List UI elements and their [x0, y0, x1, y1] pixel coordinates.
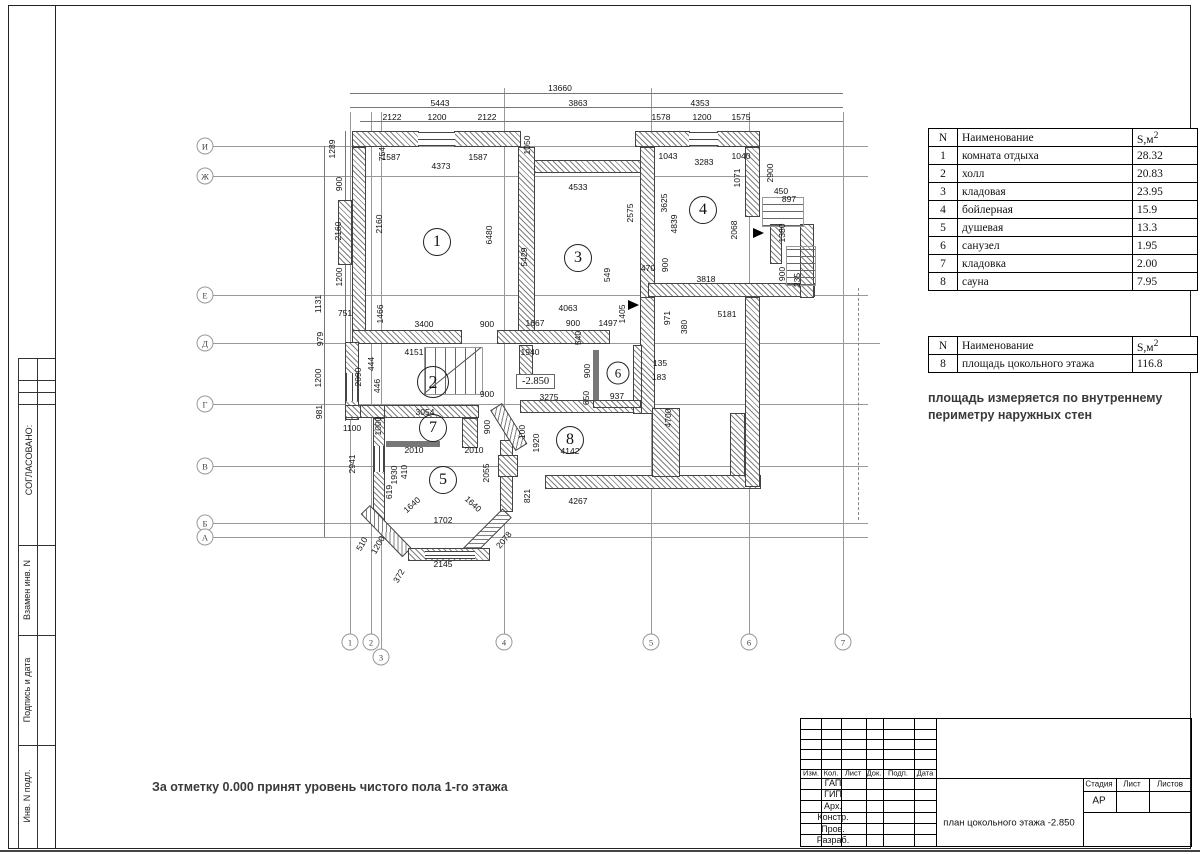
tb-role-label: ГИП	[824, 789, 842, 799]
tb-role-label: Пров.	[821, 824, 845, 834]
wall-segment	[534, 160, 641, 173]
dim-label: 100	[518, 425, 527, 439]
axis-number-circle: 2	[363, 634, 380, 651]
dim-label: 5429	[520, 248, 529, 267]
dim-label: 380	[680, 320, 689, 334]
dim-label: 2900	[766, 164, 775, 183]
stamp-section-label: Подпись и дата	[22, 658, 32, 723]
sheet-bottom-edge	[0, 850, 1200, 852]
strip-line	[18, 404, 55, 405]
dim-label: 2010	[405, 446, 424, 455]
window	[689, 132, 718, 146]
dim-label: 4700	[664, 409, 673, 428]
tb-header-cell: Лист	[845, 769, 861, 778]
col-n: N	[929, 337, 958, 355]
table-cell: 7.95	[1133, 273, 1198, 291]
dim-label: 13660	[548, 84, 572, 93]
table-cell: 2	[929, 165, 958, 183]
wall-segment	[635, 131, 690, 147]
dim-label: 2575	[626, 204, 635, 223]
table-cell: 23.95	[1133, 183, 1198, 201]
table-cell: 28.32	[1133, 147, 1198, 165]
wall-segment	[352, 147, 366, 342]
dim-label: 1200	[693, 113, 712, 122]
tb-header-cell: Кол.	[824, 769, 839, 778]
tb-stage-header: Листов	[1157, 780, 1183, 789]
dim-label: 470	[641, 264, 655, 273]
dim-label: 821	[523, 489, 532, 503]
axis-number-circle: 7	[835, 634, 852, 651]
area-measure-note: площадь измеряется по внутреннему периме…	[928, 390, 1200, 424]
dim-label: 981	[315, 405, 324, 419]
section-mark	[628, 300, 639, 310]
dim-label: 410	[400, 465, 409, 479]
dim-label: 754	[378, 147, 387, 161]
wall-segment	[745, 297, 760, 487]
dim-label: 900	[483, 420, 492, 434]
wall-segment	[352, 131, 419, 147]
strip-line	[18, 380, 55, 381]
section-mark	[753, 228, 764, 238]
dim-label: 2055	[482, 464, 491, 483]
table-cell: холл	[958, 165, 1133, 183]
tb-stage-header: Лист	[1123, 780, 1140, 789]
axis-number-circle: 3	[373, 649, 390, 666]
tb-role-label: ГАП	[825, 778, 842, 788]
wall-segment	[640, 297, 655, 414]
table-row: 1комната отдыха28.32	[929, 147, 1198, 165]
dim-label: 4151	[405, 348, 424, 357]
table-cell: бойлерная	[958, 201, 1133, 219]
dim-label: 900	[566, 319, 580, 328]
dim-line	[350, 93, 843, 94]
axis-letter-circle: Г	[197, 396, 214, 413]
stamp-section-label: Инв. N подл.	[22, 770, 32, 823]
window	[418, 132, 455, 146]
col-name: Наименование	[958, 129, 1133, 147]
table-cell: сауна	[958, 273, 1133, 291]
dim-label: 4353	[691, 99, 710, 108]
axis-line-row	[212, 466, 868, 467]
table-header-row: N Наименование S,м2	[929, 129, 1198, 147]
stamp-section-label: Взамен инв. N	[22, 560, 32, 620]
dim-label: 1131	[314, 295, 323, 313]
dim-label: 5443	[431, 99, 450, 108]
dim-label: 6480	[485, 226, 494, 245]
dim-label: 1667	[526, 319, 545, 328]
tb-header-cell: Дата	[917, 769, 934, 778]
dim-label: 235	[793, 273, 802, 287]
table-cell: душевая	[958, 219, 1133, 237]
table-row: 7кладовка2.00	[929, 255, 1198, 273]
dim-label: 1930	[390, 466, 399, 485]
dim-label: 4267	[569, 497, 588, 506]
dim-label: 2160	[375, 215, 384, 234]
dim-label: 2160	[334, 222, 343, 241]
dim-label: 900	[661, 258, 670, 272]
dim-label: 900	[583, 364, 592, 378]
table-cell: 4	[929, 201, 958, 219]
table-cell: 8	[929, 355, 958, 373]
wall-segment	[462, 418, 478, 448]
axis-line-col	[371, 112, 372, 634]
dim-label: 1380	[778, 224, 787, 243]
dim-label: 183	[652, 373, 666, 382]
dim-label: 900	[778, 267, 787, 281]
wall-segment	[498, 455, 518, 477]
dim-label: 3275	[540, 393, 559, 402]
axis-line-row	[212, 523, 868, 524]
dim-label: 1466	[376, 305, 385, 324]
drawing-sheet: { "side_strip": { "approved": "СОГЛАСОВА…	[0, 0, 1200, 854]
dim-label: 900	[480, 320, 494, 329]
dim-label: 2941	[348, 455, 357, 474]
room-number-circle: 7	[419, 414, 447, 442]
tb-role-label: Арх.	[824, 801, 842, 811]
strip-line	[18, 392, 55, 393]
dim-label: 1405	[618, 305, 627, 324]
dim-label: 3283	[695, 158, 714, 167]
tb-stage-value: АР	[1092, 796, 1105, 807]
tb-header-cell: Подп.	[888, 769, 908, 778]
dim-label: 1587	[469, 153, 488, 162]
dim-line	[350, 107, 843, 108]
dim-label: 1000	[374, 417, 383, 436]
tb-doc-title: план цокольного этажа -2.850	[943, 818, 1074, 829]
rooms-table: N Наименование S,м2 1комната отдыха28.32…	[928, 128, 1198, 291]
dim-label: 4533	[569, 183, 588, 192]
dim-label: 1497	[599, 319, 618, 328]
tb-role-label: Констр.	[817, 812, 848, 822]
strip-line	[18, 358, 55, 359]
dim-label: 1578	[652, 113, 671, 122]
dim-label: 2010	[465, 446, 484, 455]
table-row: 3кладовая23.95	[929, 183, 1198, 201]
strip-line	[18, 545, 55, 546]
dim-label: 540	[574, 331, 583, 345]
frame-left-line	[55, 5, 56, 849]
axis-letter-circle: Д	[197, 335, 214, 352]
dim-label: 1940	[521, 348, 540, 357]
dim-label: 1071	[733, 169, 742, 188]
table-cell: 1	[929, 147, 958, 165]
axis-line-col	[504, 88, 505, 634]
table-cell: 2.00	[1133, 255, 1198, 273]
level-note: За отметку 0.000 принят уровень чистого …	[152, 779, 652, 796]
dim-label: 979	[316, 332, 325, 346]
table-cell: 6	[929, 237, 958, 255]
table-cell: 7	[929, 255, 958, 273]
dim-label: 2068	[730, 221, 739, 240]
table-row: 8сауна7.95	[929, 273, 1198, 291]
col-n: N	[929, 129, 958, 147]
dim-label: 2122	[383, 113, 402, 122]
wall-segment	[593, 350, 599, 406]
room-number-circle: 8	[556, 426, 584, 454]
room-number-circle: 3	[564, 244, 592, 272]
dim-label: 1040	[732, 152, 751, 161]
col-area: S,м2	[1133, 129, 1198, 147]
table-cell: 15.9	[1133, 201, 1198, 219]
wall-segment	[640, 147, 655, 299]
dim-label: 1200	[428, 113, 447, 122]
dim-label: 1702	[434, 516, 453, 525]
wall-segment	[593, 400, 641, 408]
strip-line	[18, 635, 55, 636]
room-number-circle: 6	[607, 362, 630, 385]
dim-label: 3818	[697, 275, 716, 284]
dim-label: 2122	[478, 113, 497, 122]
dim-label: 4839	[670, 215, 679, 234]
dim-label: 446	[373, 379, 382, 393]
axis-letter-circle: В	[197, 458, 214, 475]
dim-label: 2145	[434, 560, 453, 569]
axis-line-row	[212, 537, 868, 538]
dim-label: 3625	[660, 194, 669, 213]
strip-line	[18, 745, 55, 746]
axis-letter-circle: А	[197, 529, 214, 546]
wall-segment	[717, 131, 760, 147]
wall-segment	[730, 413, 745, 479]
table-row: 4бойлерная15.9	[929, 201, 1198, 219]
table-cell: санузел	[958, 237, 1133, 255]
dashed-line	[858, 288, 859, 520]
dim-label: 1050	[523, 136, 532, 155]
dim-label: 900	[335, 177, 344, 191]
approved-label: СОГЛАСОВАНО:	[24, 425, 34, 495]
axis-number-circle: 4	[496, 634, 513, 651]
area-sup: 2	[1154, 338, 1159, 349]
room-number-circle: 4	[689, 196, 717, 224]
axis-letter-circle: Е	[197, 287, 214, 304]
dim-label: 1043	[659, 152, 678, 161]
table-cell: кладовка	[958, 255, 1133, 273]
axis-number-circle: 5	[643, 634, 660, 651]
window	[374, 446, 384, 472]
elevation-mark: -2.850	[516, 374, 555, 389]
title-block: Изм. Кол. Лист Док. Подп. Дата ГАП ГИП А…	[800, 718, 1192, 847]
table-cell: 8	[929, 273, 958, 291]
wall-segment	[454, 131, 521, 147]
dim-label: 1920	[532, 434, 541, 453]
table-cell: 20.83	[1133, 165, 1198, 183]
room-number-circle: 2	[417, 366, 449, 398]
area-sup: 2	[1154, 130, 1159, 141]
tb-role-label: Разраб.	[817, 835, 849, 845]
dim-label: 1289	[328, 140, 337, 159]
room-number-circle: 1	[423, 228, 451, 256]
dim-label: 937	[610, 392, 624, 401]
dim-label: 897	[782, 195, 796, 204]
axis-number-circle: 6	[741, 634, 758, 651]
dim-label: 971	[663, 311, 672, 325]
dim-label: 751	[338, 309, 352, 318]
dim-label: 3400	[415, 320, 434, 329]
col-name: Наименование	[958, 337, 1133, 355]
total-area-table: N Наименование S,м2 8площадь цокольного …	[928, 336, 1198, 373]
dim-label: 1100	[343, 424, 361, 433]
table-cell: кладовая	[958, 183, 1133, 201]
strip-line	[18, 358, 19, 848]
dim-label: 1200	[314, 369, 323, 388]
table-row: 6санузел1.95	[929, 237, 1198, 255]
table-cell: 5	[929, 219, 958, 237]
dim-label: 900	[480, 390, 494, 399]
dim-label: 135	[653, 359, 667, 368]
wall-segment	[352, 330, 462, 344]
dim-label: 4373	[432, 162, 451, 171]
axis-letter-circle: И	[197, 138, 214, 155]
dim-label: 3863	[569, 99, 588, 108]
axis-line-col	[843, 112, 844, 634]
dim-label: 549	[603, 268, 612, 282]
strip-line	[37, 358, 38, 848]
tb-header-cell: Док.	[867, 769, 882, 778]
table-cell: комната отдыха	[958, 147, 1133, 165]
wall-segment	[497, 330, 610, 344]
dim-label: 1200	[335, 268, 344, 287]
table-cell: 116.8	[1133, 355, 1198, 373]
table-cell: 1.95	[1133, 237, 1198, 255]
axis-number-circle: 1	[342, 634, 359, 651]
wall-segment	[518, 147, 535, 332]
dim-label: 1575	[732, 113, 751, 122]
dim-label: 619	[385, 485, 394, 499]
table-cell: 3	[929, 183, 958, 201]
table-row: 5душевая13.3	[929, 219, 1198, 237]
axis-letter-circle: Ж	[197, 168, 214, 185]
col-area: S,м2	[1133, 337, 1198, 355]
table-header-row: N Наименование S,м2	[929, 337, 1198, 355]
dim-label: 650	[582, 391, 591, 405]
table-cell: площадь цокольного этажа	[958, 355, 1133, 373]
area-unit: S,м	[1137, 133, 1154, 145]
wall-segment	[545, 475, 761, 489]
dim-label: 4063	[559, 304, 578, 313]
table-cell: 13.3	[1133, 219, 1198, 237]
table-row: 8площадь цокольного этажа116.8	[929, 355, 1198, 373]
tb-stage-header: Стадия	[1085, 780, 1112, 789]
dim-label: 444	[367, 357, 376, 371]
dim-label: 2090	[354, 368, 363, 387]
dim-label: 5181	[718, 310, 737, 319]
axis-line-row	[212, 146, 868, 147]
table-row: 2холл20.83	[929, 165, 1198, 183]
area-unit: S,м	[1137, 341, 1154, 353]
room-number-circle: 5	[429, 466, 457, 494]
tb-header-cell: Изм.	[803, 769, 819, 778]
